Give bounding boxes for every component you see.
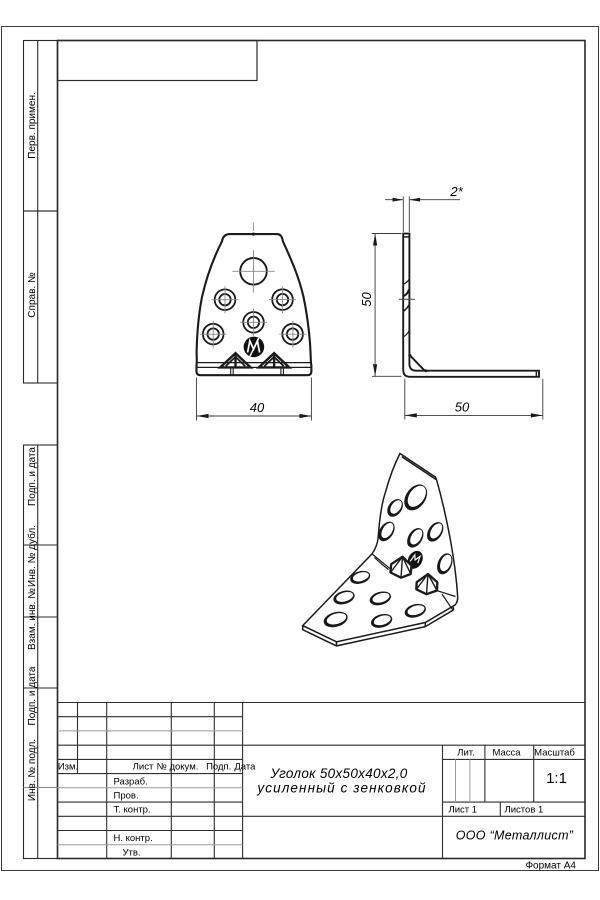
svg-text:Н. контр.: Н. контр. [114,833,153,844]
svg-text:Лит.: Лит. [457,748,474,759]
svg-text:2*: 2* [449,184,463,199]
svg-text:Подп.: Подп. [206,761,231,772]
svg-text:№ докум.: № докум. [157,761,199,772]
svg-text:Лист 1: Лист 1 [449,805,478,816]
svg-text:Утв.: Утв. [123,847,141,858]
svg-text:Дата: Дата [234,761,256,772]
svg-text:50: 50 [359,292,374,307]
svg-text:Изм.: Изм. [58,761,78,772]
svg-text:Уголок 50х50х40х2,0: Уголок 50х50х40х2,0 [269,766,407,781]
svg-text:Подп. и дата: Подп. и дата [27,447,38,506]
svg-text:Подп. и дата: Подп. и дата [27,666,38,725]
svg-text:Справ. №: Справ. № [27,272,38,318]
svg-text:50: 50 [455,400,470,415]
svg-text:Лист: Лист [133,761,154,772]
svg-text:усиленный с зенковкой: усиленный с зенковкой [256,781,426,796]
svg-text:Перв. примен.: Перв. примен. [27,92,38,158]
svg-text:Разраб.: Разраб. [114,776,148,787]
svg-text:Формат А4: Формат А4 [525,861,576,872]
svg-text:Масса: Масса [492,748,521,759]
svg-text:Листов 1: Листов 1 [505,805,544,816]
svg-text:ООО “Металлист”: ООО “Металлист” [456,829,574,843]
svg-text:Инв. № дубл.: Инв. № дубл. [26,525,38,587]
svg-text:Инв. № подл.: Инв. № подл. [27,739,38,801]
svg-text:Масштаб: Масштаб [534,748,575,759]
svg-text:40: 40 [250,400,265,415]
svg-text:Взам. инв. №: Взам. инв. № [27,588,38,650]
svg-text:Т. контр.: Т. контр. [114,805,151,816]
svg-text:1:1: 1:1 [546,770,567,787]
svg-text:Пров.: Пров. [114,791,139,802]
